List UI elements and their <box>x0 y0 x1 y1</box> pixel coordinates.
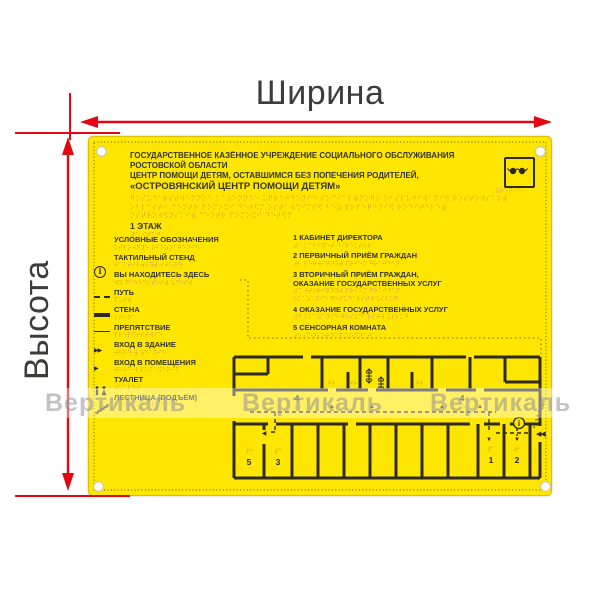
svg-text:▼: ▼ <box>514 437 520 443</box>
svg-text:▲: ▲ <box>329 404 335 410</box>
svg-text:⠋⠇: ⠋⠇ <box>350 381 358 388</box>
svg-text:⠼⠙: ⠼⠙ <box>293 405 301 412</box>
plan-room-4: 4 <box>460 393 465 403</box>
plan-room-2: 2 <box>515 455 520 465</box>
svg-text:◀: ◀ <box>262 431 267 437</box>
you-are-here-leader-line <box>240 280 541 428</box>
svg-text:⠋⠇: ⠋⠇ <box>416 381 424 388</box>
svg-text:▲: ▲ <box>369 404 375 410</box>
screw-hole <box>540 481 551 492</box>
building-entrance-arrows: ◀◀ <box>536 431 546 438</box>
svg-text:⠼⠙: ⠼⠙ <box>458 405 466 412</box>
plan-room-5: 5 <box>247 457 252 467</box>
plan-info-circle-icon: i <box>514 418 525 429</box>
plan-room-1: 1 <box>489 455 494 465</box>
svg-text:⠼⠃: ⠼⠃ <box>513 446 521 453</box>
svg-text:▲: ▲ <box>439 404 445 410</box>
svg-text:⠼⠁: ⠼⠁ <box>487 446 495 453</box>
svg-text:i: i <box>518 419 520 428</box>
dimension-arrows <box>15 93 548 496</box>
svg-text:⠋⠇: ⠋⠇ <box>328 381 336 388</box>
stairs-symbols <box>366 369 384 391</box>
svg-text:⠼⠑: ⠼⠑ <box>245 448 253 455</box>
screw-hole <box>535 146 546 157</box>
svg-text:▼: ▼ <box>486 437 492 443</box>
plan-room-4: 4 <box>295 393 300 403</box>
screw-hole <box>93 481 104 492</box>
plan-braille-tags: ⠼⠑ ⠼⠉ ⠼⠁ ⠼⠃ ⠼⠙ ⠼⠙ ⠋⠇ ⠋⠇ ⠋⠇ <box>245 381 521 455</box>
svg-text:⠼⠉: ⠼⠉ <box>274 448 282 455</box>
overlay-graphics: i ▲ ▲ ▲ ▲ ▼ ▼ ◀ ◀◀ 5 3 1 2 4 4 ⠼⠑ ⠼⠉ ⠼⠁ … <box>0 0 600 600</box>
product-image: Ширина Высота ГОСУДАРСТВЕННОЕ КАЗЁННОЕ У… <box>0 0 600 600</box>
screw-hole <box>96 146 107 157</box>
svg-text:▲: ▲ <box>477 404 483 410</box>
plan-room-3: 3 <box>276 457 281 467</box>
